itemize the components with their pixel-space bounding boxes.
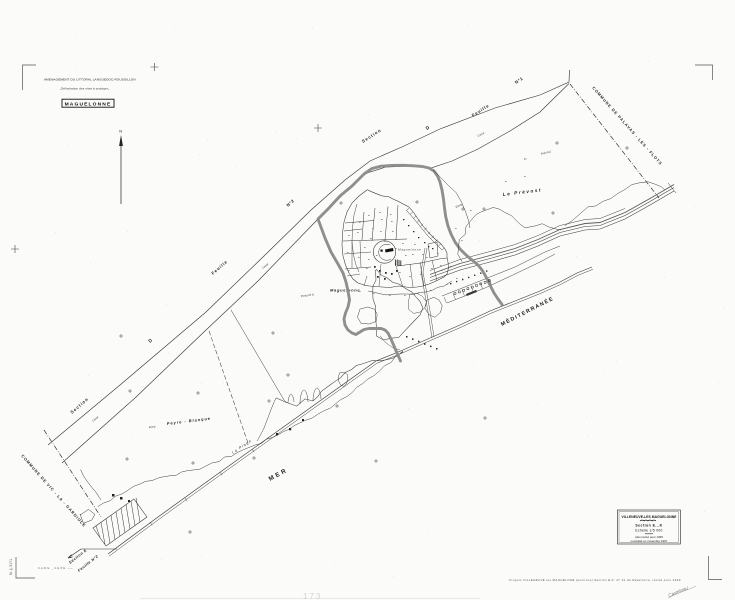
svg-text:„Délimitation des sites à: „Délimitation des sites à protéger„ xyxy=(60,87,109,91)
svg-text:Maguelonne: Maguelonne xyxy=(398,248,422,252)
svg-text:AMENAGEMENT DU LITTORAL LAN: AMENAGEMENT DU LITTORAL LANGUEDOC-ROUSSI… xyxy=(44,78,136,82)
svg-text:MAGUELONNE: MAGUELONNE xyxy=(65,101,112,107)
svg-text:N: N xyxy=(119,129,122,134)
svg-text:Croquis VILLENEUVE les MAGUELO: Croquis VILLENEUVE les MAGUELONE (enviro… xyxy=(509,578,681,582)
svg-text:Echelle 1/5 000: Echelle 1/5 000 xyxy=(635,529,662,533)
svg-text:complété en novembre 1967: complété en novembre 1967 xyxy=(631,539,668,543)
svg-text:C.A.R.E. _ C.E.P.E. ——: C.A.R.E. _ C.E.P.E. —— xyxy=(38,567,73,570)
svg-text:Section E...K: Section E...K xyxy=(635,524,662,528)
svg-text:VILLENEUVE-LES MAGUELONNE: VILLENEUVE-LES MAGUELONNE xyxy=(622,515,678,519)
svg-text:Maguelonne: Maguelonne xyxy=(330,288,360,293)
svg-text:M. |⁄₂ 51?1: M. |⁄₂ 51?1 xyxy=(9,559,13,575)
